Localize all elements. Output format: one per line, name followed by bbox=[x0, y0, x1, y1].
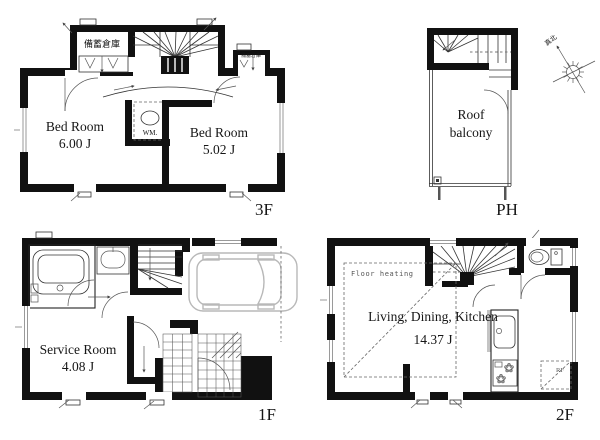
floor-label-2f: 2F bbox=[556, 405, 574, 424]
floor-plan-2f: Floor heating Living, Dining, Kitchen 14… bbox=[320, 230, 578, 424]
floor-heating-label: Floor heating bbox=[351, 270, 414, 278]
wm-label: WM. bbox=[143, 129, 158, 137]
roof-balcony-label-2: balcony bbox=[450, 125, 493, 140]
storage-right-label: 備蓄倉庫 bbox=[241, 52, 261, 59]
car-icon bbox=[189, 246, 297, 342]
north-label: 真北 bbox=[543, 32, 559, 47]
floor-label-1f: 1F bbox=[258, 405, 276, 424]
floor-plan-3f: 備蓄倉庫 備蓄倉庫 Bed Room 6.00 J Bed Room 5.02 … bbox=[14, 18, 285, 219]
room-label-bedroom2: Bed Room bbox=[190, 125, 249, 140]
door-arc bbox=[68, 280, 94, 306]
room-label-bedroom1: Bed Room bbox=[46, 119, 105, 134]
floor-plan-1f: Service Room 4.08 J 1F bbox=[15, 232, 297, 424]
room-size-service: 4.08 J bbox=[62, 359, 94, 374]
room-label-ldk: Living, Dining, Kitchen bbox=[368, 309, 498, 324]
door-arc bbox=[198, 358, 230, 390]
door-arc bbox=[133, 322, 159, 348]
room-label-service: Service Room bbox=[40, 342, 117, 357]
compass-icon: 真北 bbox=[543, 32, 595, 93]
floor-plan-image: 備蓄倉庫 備蓄倉庫 Bed Room 6.00 J Bed Room 5.02 … bbox=[0, 0, 600, 440]
room-size-bedroom1: 6.00 J bbox=[59, 136, 91, 151]
north-arrow bbox=[557, 46, 585, 93]
floor-plan-ph: Roof balcony PH bbox=[427, 28, 518, 219]
sink-icon bbox=[88, 247, 129, 297]
floor-label-3f: 3F bbox=[255, 200, 273, 219]
room-size-bedroom2: 5.02 J bbox=[203, 142, 235, 157]
floor-label-ph: PH bbox=[496, 200, 518, 219]
door-arc bbox=[484, 90, 508, 114]
room-size-ldk: 14.37 J bbox=[413, 332, 452, 347]
entrance-tiles bbox=[163, 332, 241, 397]
roof-balcony-label-1: Roof bbox=[458, 107, 486, 122]
floor-plan-svg: 備蓄倉庫 備蓄倉庫 Bed Room 6.00 J Bed Room 5.02 … bbox=[0, 0, 600, 440]
rf-label: RF bbox=[556, 367, 564, 374]
storage-left-label: 備蓄倉庫 bbox=[84, 38, 120, 49]
door-arc bbox=[102, 292, 128, 318]
